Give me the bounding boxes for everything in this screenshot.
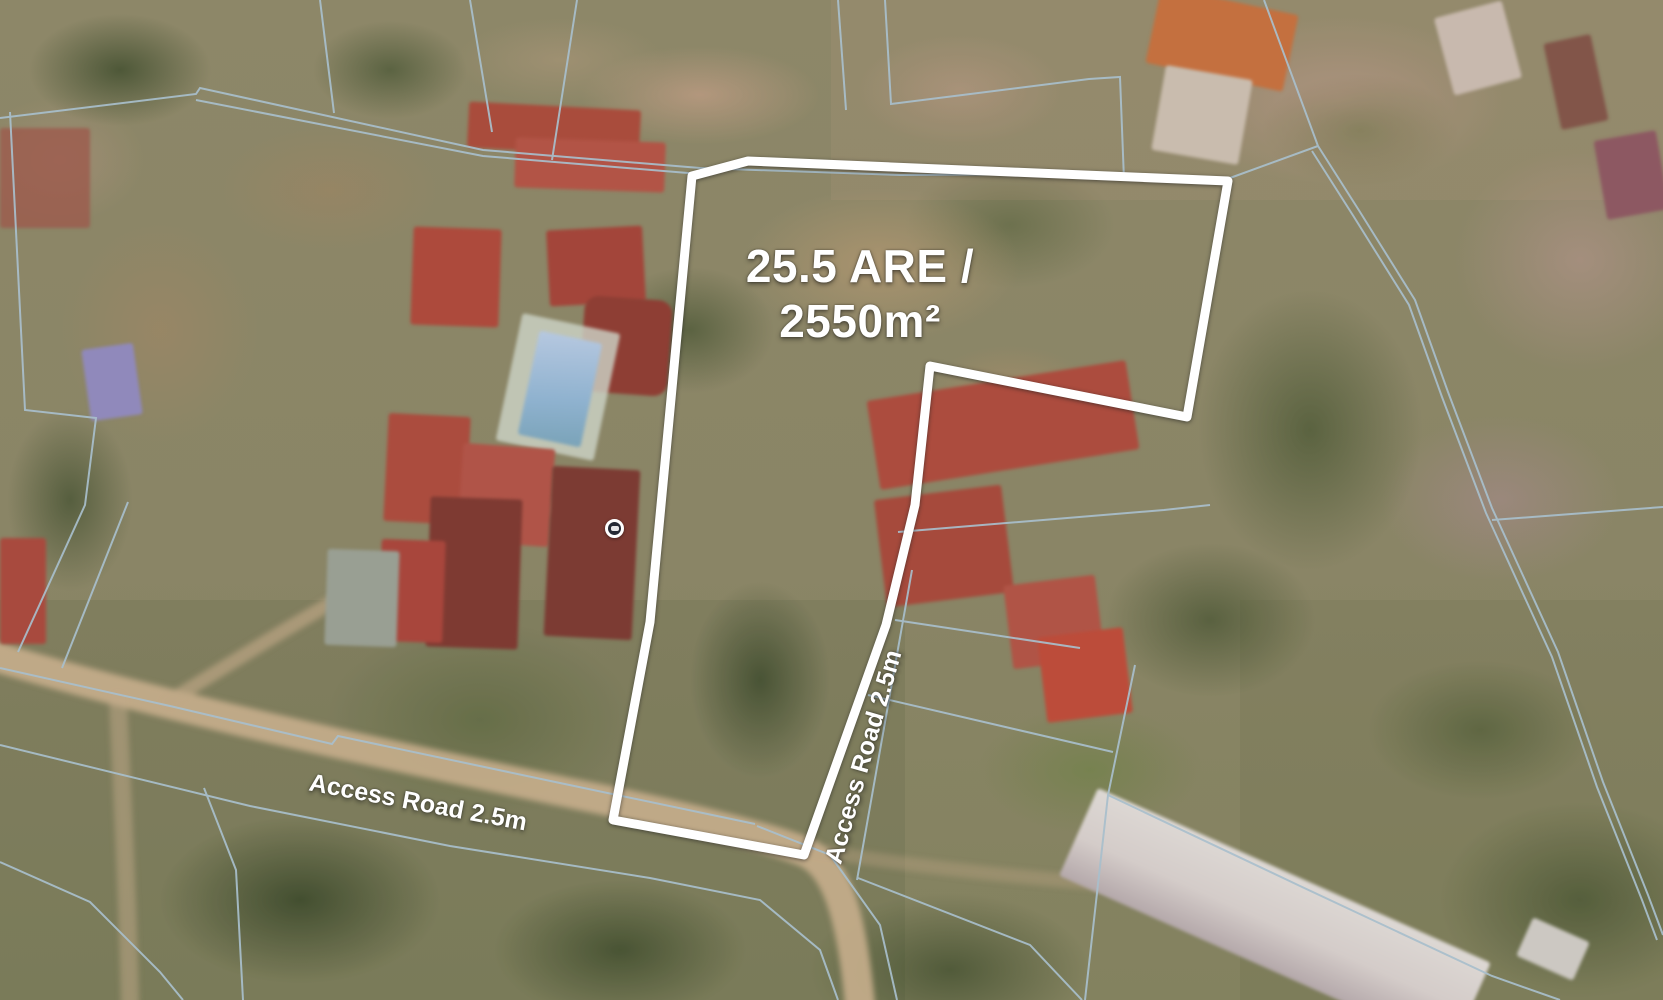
cadastre-line (1492, 507, 1663, 520)
cadastre-line (62, 502, 128, 668)
plot-area-line2: 2550m² (746, 294, 974, 349)
cadastre-line (1312, 151, 1657, 940)
cadastre-line (0, 88, 1226, 178)
cadastre-line (1108, 795, 1560, 1000)
plot-area-line1: 25.5 ARE / (746, 239, 974, 294)
cadastre-line (1230, 0, 1318, 178)
cadastre-line (1318, 146, 1663, 935)
satellite-map-viewport: 25.5 ARE / 2550m² Access Road 2.5m Acces… (0, 0, 1663, 1000)
cadastre-line (320, 0, 334, 113)
cadastre-line (838, 0, 846, 110)
cadastre-line (552, 0, 577, 160)
cadastre-line (885, 0, 1124, 180)
cadastre-line (204, 788, 243, 1000)
cadastre-line (898, 505, 1210, 532)
cadastre-line (10, 112, 96, 652)
plot-area-label: 25.5 ARE / 2550m² (746, 239, 974, 349)
cadastre-line (0, 745, 838, 1000)
cadastre-line (470, 0, 492, 132)
cadastre-line (895, 620, 1080, 648)
car-glyph (611, 526, 619, 531)
cadastre-line (858, 878, 1082, 1000)
vehicle-marker-icon (605, 519, 624, 538)
cadastre-line (1085, 665, 1135, 1000)
cadastre-line (196, 100, 700, 174)
cadastre-line (868, 695, 1113, 752)
cadastre-line (0, 862, 183, 1000)
